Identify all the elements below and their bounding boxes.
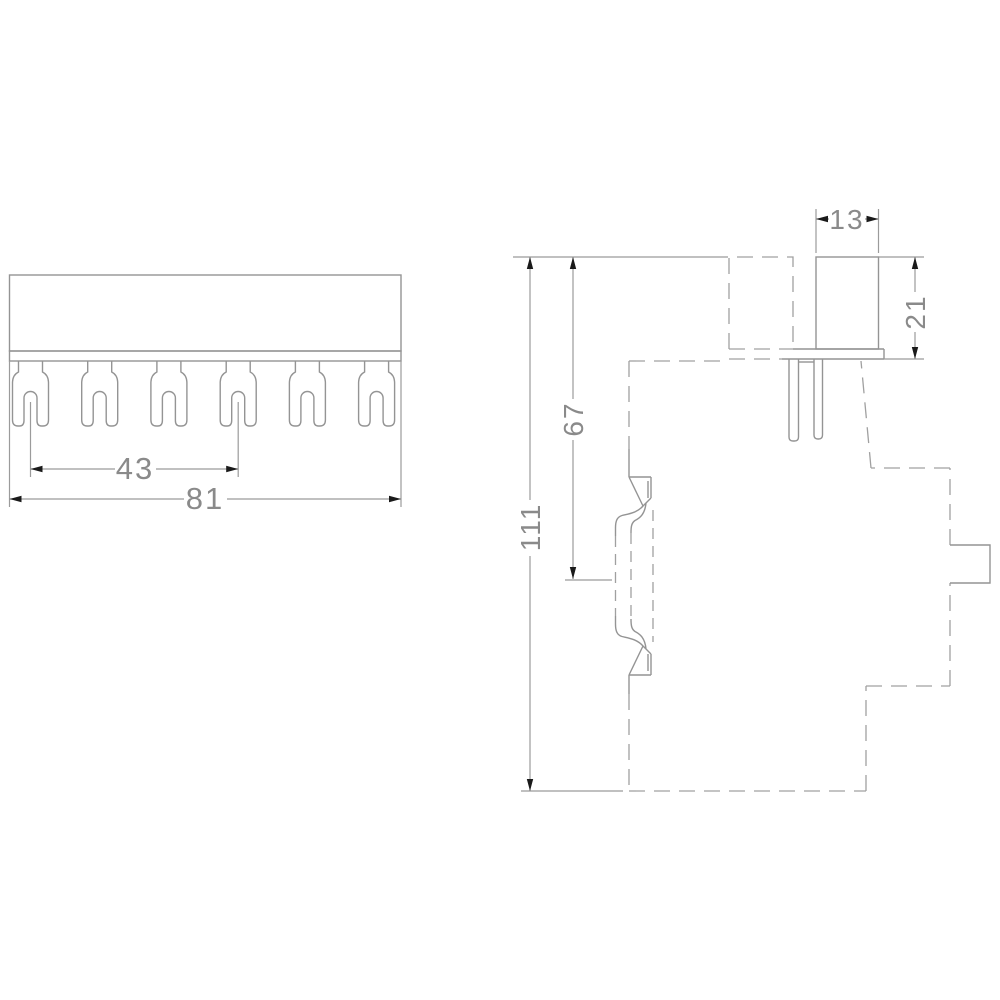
dimension-81: 81 — [10, 361, 402, 516]
side-knob — [950, 545, 990, 583]
side-view: 13 21 67 111 — [513, 204, 990, 791]
busbar-dimension-drawing: 43 81 — [0, 0, 1000, 1000]
dimension-label-cap-width: 13 — [829, 204, 864, 235]
dimension-21: 21 — [879, 257, 932, 359]
dimension-label-cap-height: 21 — [900, 294, 931, 329]
fork-terminals — [13, 361, 395, 426]
dimension-label-total-width: 81 — [186, 481, 224, 516]
dimension-13: 13 — [816, 204, 879, 253]
phantom-cap — [729, 257, 793, 359]
fork-blade-front — [789, 359, 799, 441]
dimension-label-top-to-rail: 67 — [558, 401, 589, 436]
technical-drawing-canvas: 43 81 — [0, 0, 1000, 1000]
dimension-label-total-height: 111 — [515, 503, 546, 552]
fork-terminal — [151, 361, 187, 426]
busbar-body — [10, 275, 402, 351]
busbar-cap — [816, 257, 879, 349]
fork-blade-rear — [814, 359, 823, 439]
din-rail-profile — [616, 449, 654, 694]
fork-terminal — [359, 361, 395, 426]
busbar-strip-side — [782, 349, 884, 359]
dimension-43: 43 — [31, 402, 239, 486]
dimension-67: 67 — [558, 257, 612, 580]
front-view: 43 81 — [10, 275, 402, 516]
dimension-111: 111 — [515, 257, 623, 791]
dimension-label-pin-spacing: 43 — [116, 451, 154, 486]
busbar-strip — [10, 351, 402, 361]
fork-terminal — [289, 361, 325, 426]
fork-terminal — [82, 361, 118, 426]
busbar-side — [782, 257, 884, 441]
